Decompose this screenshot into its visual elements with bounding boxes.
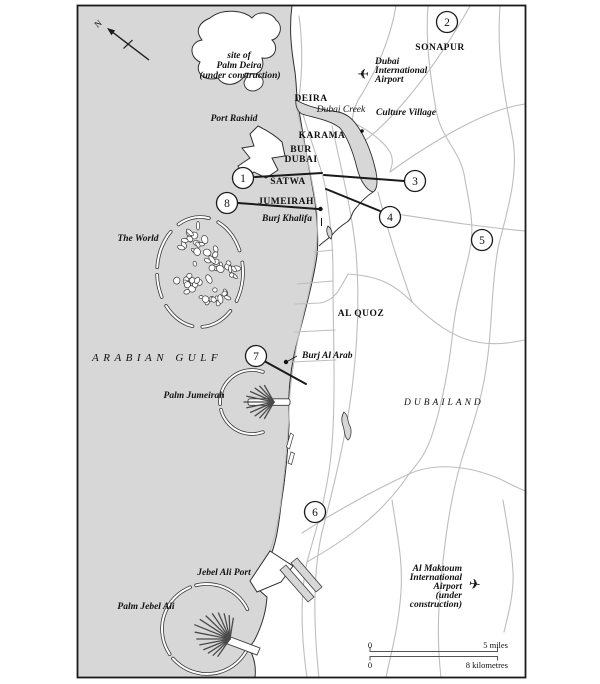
port-rashid-label: Port Rashid (211, 114, 258, 124)
dubai-map-page: 1 2 3 4 5 6 7 8 ✈ ✈ (0, 0, 600, 684)
al-quoz-label: AL QUOZ (338, 309, 385, 319)
dubai-airport-label-3: Airport (374, 75, 404, 85)
dubai-creek-label: Dubai Creek (316, 105, 366, 115)
palm-deira-label-2: Palm Deira (216, 61, 261, 71)
marker-3-number: 3 (412, 176, 418, 188)
map-marker-1: 1 (233, 168, 254, 189)
palm-jebel-ali-label: Palm Jebel Ali (117, 602, 175, 612)
culture-village-label: Culture Village (376, 108, 437, 118)
arabian-gulf-label: ARABIAN GULF (91, 352, 222, 364)
marker-6-number: 6 (312, 507, 318, 519)
bur-dubai-label-1: BUR (290, 145, 312, 155)
the-world-label: The World (117, 234, 158, 244)
karama-label: KARAMA (299, 131, 346, 141)
scale-zero-km: 0 (368, 660, 372, 670)
map-marker-6: 6 (305, 502, 326, 523)
jebel-ali-port-label: Jebel Ali Port (196, 568, 251, 578)
sonapur-label: SONAPUR (415, 43, 464, 53)
map-marker-8: 8 (217, 193, 238, 214)
al-maktoum-label-5: construction) (410, 599, 462, 610)
satwa-label: SATWA (270, 177, 306, 187)
dubailand-label: DUBAILAND (403, 398, 484, 408)
al-maktoum-airport-icon: ✈ (468, 576, 482, 593)
marker-1-number: 1 (240, 173, 246, 185)
marker-2-number: 2 (444, 17, 450, 29)
marker-7-number: 7 (253, 351, 259, 363)
map-marker-4: 4 (380, 207, 401, 228)
scale-miles-label: 5 miles (483, 640, 508, 650)
palm-deira-label-3: (under construction) (199, 70, 280, 81)
map-marker-5: 5 (472, 230, 493, 251)
scale-zero-miles: 0 (368, 640, 372, 650)
scale-km-label: 8 kilometres (466, 660, 508, 670)
palm-jumeirah-label: Palm Jumeirah (164, 391, 225, 401)
map-marker-7: 7 (246, 346, 267, 367)
marker-5-number: 5 (479, 235, 485, 247)
burj-khalifa-label: Burj Khalifa (261, 214, 312, 224)
dubai-airport-icon: ✈ (357, 67, 369, 83)
jumeirah-label: JUMEIRAH (258, 197, 314, 207)
map-marker-2: 2 (437, 12, 458, 33)
deira-label: DEIRA (294, 94, 327, 104)
burj-al-arab-label: Burj Al Arab (301, 351, 353, 361)
bur-dubai-label-2: DUBAI (284, 155, 317, 165)
marker-4-number: 4 (387, 212, 393, 224)
marker-8-number: 8 (224, 198, 230, 210)
palm-deira-label-1: site of (226, 51, 251, 61)
map-marker-3: 3 (405, 171, 426, 192)
dubai-map: 1 2 3 4 5 6 7 8 ✈ ✈ (0, 0, 600, 684)
